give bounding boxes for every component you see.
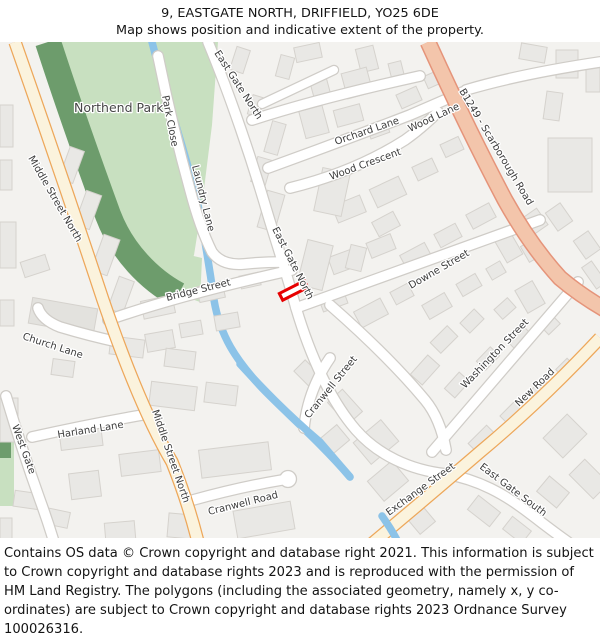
page-title: 9, EASTGATE NORTH, DRIFFIELD, YO25 6DE: [0, 0, 600, 22]
property-map-page: 9, EASTGATE NORTH, DRIFFIELD, YO25 6DE M…: [0, 0, 600, 625]
page-subtitle: Map shows position and indicative extent…: [0, 22, 600, 39]
park-label: Northend Park: [74, 100, 164, 115]
street-label-wood-crescent: Wood Crescent: [328, 147, 403, 183]
map-header: 9, EASTGATE NORTH, DRIFFIELD, YO25 6DE M…: [0, 0, 600, 42]
map-canvas: Northend Park Middle Street North Park C…: [0, 42, 600, 538]
copyright-attribution: Contains OS data © Crown copyright and d…: [0, 538, 600, 639]
map-image: Northend Park Middle Street North Park C…: [0, 42, 600, 538]
